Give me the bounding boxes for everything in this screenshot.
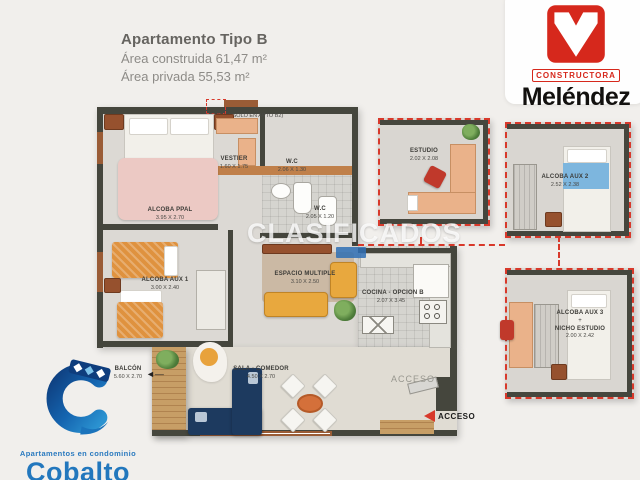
window-left-1 — [97, 132, 103, 164]
plant — [156, 350, 179, 369]
sala-rug-center — [200, 348, 218, 366]
bed-main-pillow — [129, 118, 168, 135]
bed-aux2-pillow — [567, 149, 607, 163]
nightstand — [551, 364, 567, 380]
watermark: CLASIFICADOS — [247, 218, 462, 249]
desk-chair — [423, 165, 447, 189]
wardrobe — [196, 270, 226, 330]
room-label-sala-comedor: SALA - COMEDOR 4.50 X 2.70 — [230, 366, 292, 381]
cobalto-brand: Apartamentos en condominio Cobalto — [14, 356, 142, 480]
acceso-arrow-icon — [424, 410, 435, 422]
wall-mid — [97, 224, 218, 230]
room-label-cocina: COCINA - OPCION B 2.07 X 3.45 — [362, 290, 420, 305]
nightstand — [545, 212, 562, 227]
bed-aux1-b — [117, 302, 163, 338]
cobalto-name: Cobalto — [14, 457, 142, 480]
cobalto-logo-icon — [37, 356, 119, 444]
wall — [627, 270, 632, 397]
vestier-shelf — [216, 118, 258, 134]
acceso-door-label: ACCESO — [391, 374, 435, 384]
room-label-alcoba-ppal: ALCOBA PPAL 3.95 X 2.70 — [140, 207, 200, 222]
nightstand — [104, 114, 124, 130]
plus-sign: + — [545, 318, 615, 326]
entry-walkway — [380, 420, 434, 434]
room-label-estudio: ESTUDIO 2.02 X 2.08 — [394, 148, 454, 163]
paper — [407, 195, 418, 211]
floor-plan-poster: Apartamento Tipo B Área construida 61,47… — [0, 0, 640, 480]
stove — [419, 300, 447, 324]
wall-divider — [228, 230, 233, 347]
desk — [408, 192, 476, 214]
nightstand — [104, 278, 121, 293]
sofa-pillow — [195, 412, 207, 422]
room-label-wc2: W.C 2.05 X 1.20 — [300, 206, 340, 221]
alcoba-aux2-room: ALCOBA AUX 2 2.52 X 2.38 — [505, 122, 631, 238]
wall — [507, 270, 632, 275]
room-label-alcoba-aux2: ALCOBA AUX 2 2.52 X 2.38 — [533, 174, 597, 189]
wall — [507, 392, 632, 397]
header: Apartamento Tipo B Área construida 61,47… — [121, 31, 268, 84]
bed-main-pillow — [170, 118, 209, 135]
wall — [624, 124, 629, 236]
room-label-wc1: W.C 2.06 X 1.30 — [272, 159, 312, 174]
wall-sala-right-top — [450, 347, 457, 377]
melendez-name: Meléndez — [518, 83, 634, 112]
estudio-room: ESTUDIO 2.02 X 2.08 — [378, 118, 490, 226]
plant — [462, 124, 480, 140]
area-privada-text: Área privada 55,53 m² — [121, 69, 268, 84]
balcon-arrow-icon: ◄— — [146, 369, 164, 379]
sofa-yellow — [264, 292, 328, 317]
wall-wc — [260, 114, 265, 166]
desk-chair — [500, 320, 514, 340]
area-construida-text: Área construida 61,47 m² — [121, 51, 268, 66]
bed-aux1-a-pillow — [164, 246, 178, 276]
wall-kitchen-right — [450, 246, 457, 347]
window-left-2 — [97, 252, 103, 292]
ventana-window-bar — [224, 100, 258, 107]
room-label-alcoba-aux3: ALCOBA AUX 3 + NICHO ESTUDIO 2.00 X 2.42 — [545, 310, 615, 341]
dashed-connector-vertical — [558, 236, 560, 266]
room-label-vestier: VESTIER 1.60 X 1.75 — [211, 156, 257, 171]
wall — [507, 124, 629, 129]
dining-table — [297, 394, 323, 413]
plant — [334, 300, 356, 321]
melendez-brand: CONSTRUCTORA Meléndez — [518, 4, 634, 112]
room-label-espacio-multiple: ESPACIO MULTIPLE 3.10 X 2.50 — [271, 271, 339, 286]
page-title: Apartamento Tipo B — [121, 31, 268, 48]
wall-acceso-corner — [436, 377, 457, 411]
bed-aux3-pillow — [571, 294, 607, 308]
melendez-constructora-label: CONSTRUCTORA — [532, 69, 620, 82]
bathroom-sink — [271, 183, 291, 199]
kitchen-sink — [362, 316, 394, 334]
alcoba-aux3-room: ALCOBA AUX 3 + NICHO ESTUDIO 2.00 X 2.42 — [505, 268, 634, 399]
melendez-logo-icon — [546, 4, 606, 64]
wall — [483, 120, 488, 224]
acceso-entry-label: ACCESO — [438, 412, 475, 421]
watermark-tag — [336, 247, 366, 258]
room-label-alcoba-aux1: ALCOBA AUX 1 3.00 X 2.40 — [134, 277, 196, 292]
ventana-marker-box — [206, 99, 226, 114]
